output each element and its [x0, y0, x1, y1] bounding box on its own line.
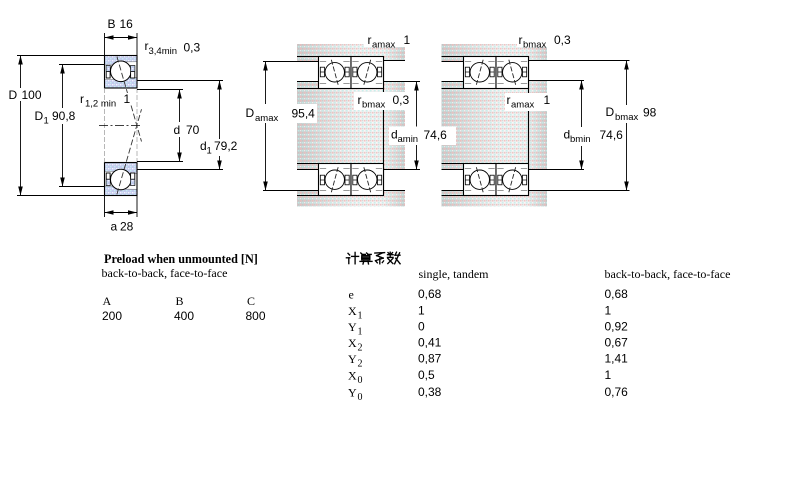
svg-text:0,38: 0,38 — [418, 385, 442, 399]
svg-text:r: r — [358, 93, 362, 107]
svg-text:16: 16 — [120, 17, 134, 31]
svg-text:bmax: bmax — [615, 112, 638, 123]
svg-text:D: D — [35, 109, 44, 123]
svg-text:bmax: bmax — [523, 40, 546, 51]
svg-text:1: 1 — [44, 116, 49, 127]
svg-text:amax: amax — [372, 40, 395, 51]
svg-text:bmin: bmin — [570, 134, 591, 145]
svg-text:B: B — [176, 294, 184, 308]
svg-text:amin: amin — [398, 134, 419, 145]
svg-text:e: e — [349, 288, 354, 302]
svg-text:400: 400 — [174, 309, 194, 323]
svg-text:r: r — [80, 92, 84, 106]
svg-text:X: X — [348, 369, 357, 383]
svg-text:74,6: 74,6 — [600, 128, 624, 142]
svg-text:amax: amax — [255, 113, 278, 124]
svg-text:0,68: 0,68 — [605, 287, 629, 301]
svg-text:0,3: 0,3 — [554, 33, 571, 47]
svg-text:100: 100 — [22, 88, 42, 102]
svg-text:1: 1 — [605, 368, 612, 382]
svg-text:0,67: 0,67 — [605, 336, 629, 350]
svg-text:r: r — [507, 93, 511, 107]
svg-text:Y: Y — [348, 352, 357, 366]
svg-text:single, tandem: single, tandem — [419, 267, 490, 281]
svg-text:r: r — [368, 33, 372, 47]
svg-text:1: 1 — [418, 304, 425, 318]
svg-text:D: D — [9, 88, 18, 102]
svg-text:3,4min: 3,4min — [149, 46, 178, 57]
svg-text:1: 1 — [358, 327, 363, 338]
svg-text:Y: Y — [348, 320, 357, 334]
svg-text:98: 98 — [643, 106, 657, 120]
svg-text:D: D — [606, 105, 615, 119]
svg-text:Y: Y — [348, 386, 357, 400]
svg-text:0,76: 0,76 — [605, 385, 629, 399]
svg-text:1: 1 — [207, 146, 212, 157]
svg-text:0: 0 — [358, 392, 363, 403]
svg-text:C: C — [247, 294, 255, 308]
svg-text:1,41: 1,41 — [605, 352, 629, 366]
svg-text:200: 200 — [102, 309, 122, 323]
svg-text:0,41: 0,41 — [418, 336, 442, 350]
svg-text:2: 2 — [358, 343, 363, 354]
svg-text:0,3: 0,3 — [393, 93, 410, 107]
svg-text:1: 1 — [124, 92, 131, 106]
svg-text:Preload when unmounted [N]: Preload when unmounted [N] — [104, 252, 258, 266]
svg-text:800: 800 — [246, 309, 266, 323]
svg-text:B: B — [108, 17, 116, 31]
svg-text:0,3: 0,3 — [184, 41, 201, 55]
svg-text:1: 1 — [404, 33, 411, 47]
svg-text:1: 1 — [544, 93, 551, 107]
svg-text:28: 28 — [120, 220, 134, 234]
svg-text:0,5: 0,5 — [418, 368, 435, 382]
svg-text:95,4: 95,4 — [292, 107, 316, 121]
svg-text:back-to-back, face-to-face: back-to-back, face-to-face — [605, 267, 731, 281]
svg-text:0,68: 0,68 — [418, 287, 442, 301]
svg-text:0,92: 0,92 — [605, 320, 629, 334]
svg-text:79,2: 79,2 — [214, 139, 238, 153]
svg-text:0: 0 — [358, 375, 363, 386]
svg-text:X: X — [348, 304, 357, 318]
svg-text:70: 70 — [186, 123, 200, 137]
svg-text:A: A — [103, 294, 112, 308]
svg-text:0: 0 — [418, 320, 425, 334]
svg-text:r: r — [519, 33, 523, 47]
svg-text:back-to-back, face-to-face: back-to-back, face-to-face — [102, 266, 228, 280]
svg-text:X: X — [348, 336, 357, 350]
svg-text:1: 1 — [605, 304, 612, 318]
svg-text:1,2 min: 1,2 min — [85, 99, 116, 110]
svg-text:D: D — [246, 106, 255, 120]
svg-text:1: 1 — [358, 311, 363, 322]
svg-text:0,87: 0,87 — [418, 352, 442, 366]
svg-text:d: d — [174, 123, 181, 137]
svg-text:74,6: 74,6 — [424, 128, 448, 142]
svg-text:amax: amax — [511, 100, 534, 111]
svg-text:bmax: bmax — [362, 100, 385, 111]
svg-text:2: 2 — [358, 359, 363, 370]
svg-text:a: a — [111, 220, 118, 234]
svg-text:90,8: 90,8 — [52, 109, 76, 123]
